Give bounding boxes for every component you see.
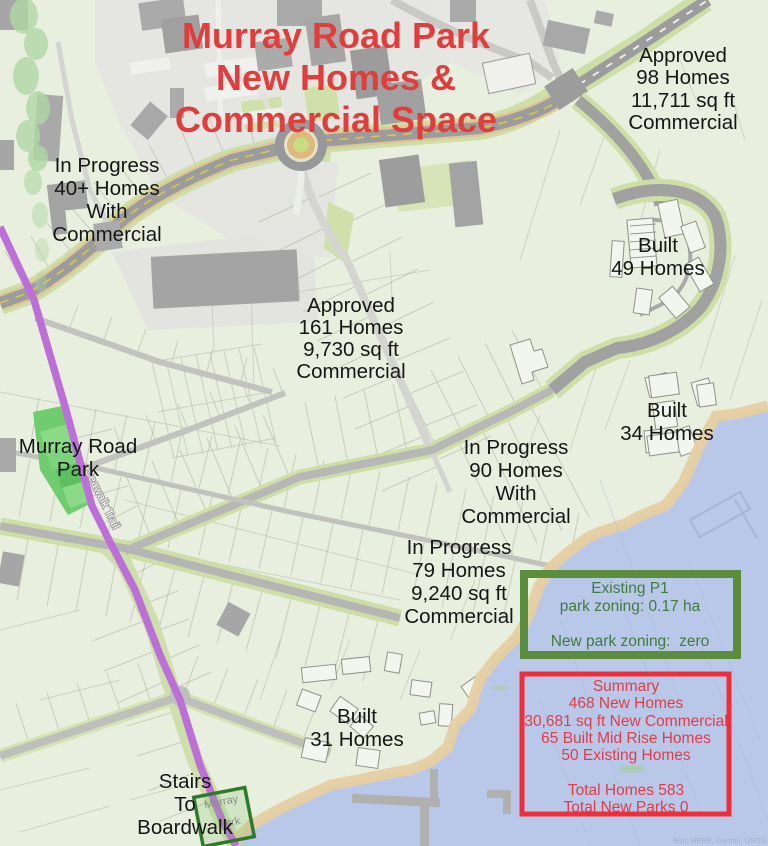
svg-text:In Progress: In Progress	[464, 436, 569, 459]
svg-text:In Progress: In Progress	[55, 154, 160, 177]
svg-text:65 Built Mid Rise Homes: 65 Built Mid Rise Homes	[541, 730, 711, 747]
svg-text:Commercial: Commercial	[296, 360, 405, 383]
svg-text:31 Homes: 31 Homes	[310, 728, 403, 751]
svg-text:Built: Built	[337, 705, 377, 728]
svg-text:Total New Parks 0: Total New Parks 0	[564, 799, 689, 816]
svg-text:90 Homes: 90 Homes	[469, 459, 562, 482]
svg-text:Approved: Approved	[639, 44, 727, 67]
svg-text:Commercial: Commercial	[52, 223, 161, 246]
svg-text:Commercial Space: Commercial Space	[175, 99, 497, 140]
svg-text:Commercial: Commercial	[628, 111, 737, 134]
svg-text:Stairs: Stairs	[159, 770, 211, 793]
svg-text:9,240 sq ft: 9,240 sq ft	[411, 582, 507, 605]
svg-text:Boardwalk: Boardwalk	[137, 816, 233, 839]
svg-text:98 Homes: 98 Homes	[636, 66, 729, 89]
svg-text:34 Homes: 34 Homes	[620, 422, 713, 445]
svg-text:Built: Built	[647, 399, 687, 422]
svg-text:30,681 sq ft New Commercial: 30,681 sq ft New Commercial	[524, 713, 727, 730]
svg-text:79 Homes: 79 Homes	[412, 559, 505, 582]
svg-text:Commercial: Commercial	[404, 605, 513, 628]
svg-text:49 Homes: 49 Homes	[611, 257, 704, 280]
svg-text:Esri, HERE, Garmin, USGS: Esri, HERE, Garmin, USGS	[674, 836, 766, 845]
svg-text:With: With	[496, 482, 537, 505]
svg-text:Built: Built	[638, 234, 678, 257]
svg-text:Murray Road: Murray Road	[19, 435, 138, 458]
svg-text:50 Existing Homes: 50 Existing Homes	[561, 747, 690, 764]
svg-text:468 New Homes: 468 New Homes	[569, 695, 684, 712]
svg-text:Murray Road Park: Murray Road Park	[182, 15, 491, 56]
svg-text:Approved: Approved	[307, 294, 395, 317]
svg-text:With: With	[87, 200, 128, 223]
svg-text:Existing P1: Existing P1	[591, 580, 669, 597]
svg-text:Total Homes 583: Total Homes 583	[568, 782, 684, 799]
svg-text:Park: Park	[57, 458, 100, 481]
svg-text:New park zoning: zero: New park zoning: zero	[551, 633, 710, 650]
svg-text:Commercial: Commercial	[461, 505, 570, 528]
svg-text:New Homes &: New Homes &	[216, 57, 456, 98]
svg-text:In Progress: In Progress	[407, 536, 512, 559]
svg-text:40+ Homes: 40+ Homes	[54, 177, 159, 200]
svg-text:9,730 sq ft: 9,730 sq ft	[303, 338, 399, 361]
svg-text:park zoning: 0.17 ha: park zoning: 0.17 ha	[560, 598, 701, 615]
svg-text:161 Homes: 161 Homes	[299, 316, 404, 339]
svg-text:Summary: Summary	[593, 678, 660, 695]
svg-text:11,711 sq ft: 11,711 sq ft	[631, 89, 735, 112]
svg-text:To: To	[174, 793, 196, 816]
